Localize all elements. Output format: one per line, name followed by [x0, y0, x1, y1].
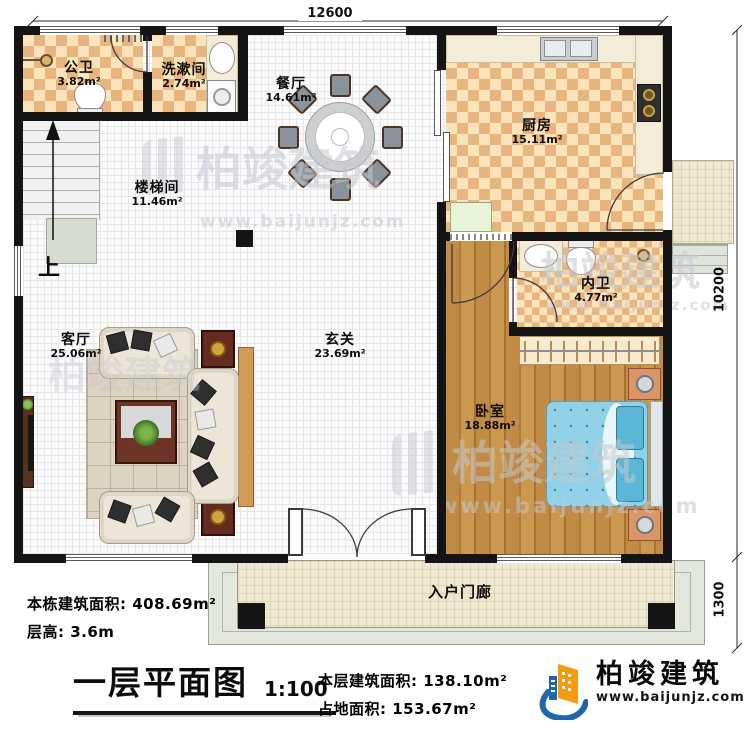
- coffee-table: [115, 400, 177, 464]
- stair-flight: [23, 118, 100, 220]
- bed: [546, 401, 663, 507]
- room-area: 14.61m²: [252, 92, 330, 105]
- room-area: 4.77m²: [558, 292, 634, 305]
- wall-segment: [437, 26, 446, 70]
- room-name: 玄关: [302, 332, 378, 348]
- side-table: [201, 330, 235, 368]
- window: [66, 554, 192, 563]
- room-label-washroom: 洗漱间 2.74m²: [147, 62, 221, 91]
- room-name: 厨房: [500, 118, 574, 134]
- kitchen-sink-basin: [570, 40, 592, 57]
- room-area: 2.74m²: [147, 78, 221, 91]
- dimension-porch-height: 1300: [713, 573, 728, 627]
- dining-chair: [330, 74, 351, 97]
- bed-pillow: [616, 458, 644, 502]
- wardrobe-rod: [520, 350, 661, 352]
- room-name: 内卫: [558, 276, 634, 292]
- room-name: 餐厅: [252, 76, 330, 92]
- side-terrace: [672, 160, 734, 244]
- room-name: 洗漱间: [147, 62, 221, 78]
- room-label-dining: 餐厅 14.61m²: [252, 76, 330, 105]
- console-table: [238, 347, 254, 507]
- stove-burner: [643, 105, 655, 117]
- kitchen-sink-basin: [544, 40, 566, 57]
- brand-logo-icon: [536, 660, 588, 720]
- plant-icon: [22, 399, 33, 410]
- nightstand: [628, 368, 661, 400]
- window: [497, 26, 619, 35]
- floor-plan-canvas: 入户门廊: [0, 0, 750, 730]
- plant-icon: [133, 420, 159, 446]
- dimension-tick: [658, 16, 668, 26]
- room-area: 18.88m²: [452, 420, 528, 433]
- wall-segment: [517, 327, 663, 336]
- sofa-pillow: [194, 408, 216, 430]
- nightstand: [628, 509, 661, 541]
- brand-text-block: 柏竣建筑 www.baijunjz.com: [596, 660, 745, 705]
- lamp-icon: [210, 509, 226, 525]
- footprint-area-text: 占地面积: 153.67m²: [318, 698, 476, 719]
- room-label-public-bath: 公卫 3.82m²: [44, 60, 114, 89]
- room-name: 客厅: [38, 332, 114, 348]
- wall-segment: [143, 35, 152, 41]
- stairs-up-label: 上: [38, 250, 60, 282]
- brand-name: 柏竣建筑: [596, 660, 745, 690]
- bed-pillow: [616, 406, 644, 450]
- fridge: [450, 202, 492, 232]
- window: [166, 26, 218, 35]
- window: [284, 26, 406, 35]
- floor-area-text: 本层建筑面积: 138.10m²: [318, 670, 507, 691]
- brand-logo-block: 柏竣建筑 www.baijunjz.com: [536, 660, 745, 720]
- dimension-tick: [28, 16, 38, 26]
- lamp-icon: [210, 341, 226, 357]
- dining-chair: [330, 178, 351, 201]
- porch-column: [648, 603, 675, 629]
- sofa-pillow: [130, 329, 152, 351]
- room-label-entry-porch: 入户门廊: [413, 584, 507, 601]
- dimension-tick: [732, 552, 742, 562]
- wall-segment: [14, 112, 238, 121]
- room-label-foyer: 玄关 23.69m²: [302, 332, 378, 361]
- room-name: 公卫: [44, 60, 114, 76]
- entry-door-panel: [288, 508, 303, 556]
- sliding-door-panel: [443, 132, 450, 202]
- table-lamp-icon: [636, 516, 654, 534]
- brand-tower: [549, 676, 557, 700]
- dining-chair: [278, 126, 299, 149]
- building-total-area-text: 本栋建筑面积: 408.69m²: [27, 593, 216, 614]
- shower-head-icon: [637, 249, 650, 262]
- dimension-tick: [732, 643, 742, 653]
- wall-segment: [663, 26, 672, 172]
- plan-title: 一层平面图: [73, 656, 248, 704]
- room-label-bedroom: 卧室 18.88m²: [452, 404, 528, 433]
- wall-segment: [509, 240, 517, 278]
- wall-segment: [663, 230, 672, 563]
- dimension-top-width: 12600: [298, 6, 362, 21]
- porch-column: [238, 603, 265, 629]
- window: [40, 26, 140, 35]
- window: [497, 554, 621, 563]
- room-area: 11.46m²: [118, 196, 196, 209]
- tv-icon: [28, 415, 33, 471]
- bedroom-corridor-floor: [446, 240, 509, 336]
- room-label-living: 客厅 25.06m²: [38, 332, 114, 361]
- room-area: 25.06m²: [38, 348, 114, 361]
- wall-segment: [238, 26, 248, 121]
- room-area: 3.82m²: [44, 76, 114, 89]
- dining-table-center: [331, 128, 349, 146]
- bed-headboard: [650, 401, 663, 507]
- door-threshold: [450, 234, 512, 240]
- room-area: 23.69m²: [302, 348, 378, 361]
- floor-height-text: 层高: 3.6m: [27, 621, 114, 642]
- stove-burner: [643, 89, 655, 101]
- room-label-stairwell: 楼梯间 11.46m²: [118, 180, 196, 209]
- room-name-entry-porch: 入户门廊: [413, 584, 507, 601]
- inner-bath-sink: [524, 244, 558, 268]
- table-lamp-icon: [636, 375, 654, 393]
- brand-url: www.baijunjz.com: [596, 690, 745, 705]
- wardrobe: [519, 336, 660, 365]
- dining-chair: [382, 126, 403, 149]
- window: [14, 246, 23, 296]
- wall-segment: [437, 202, 446, 240]
- room-label-kitchen: 厨房 15.11m²: [500, 118, 574, 147]
- wall-segment: [509, 322, 517, 336]
- room-name: 卧室: [452, 404, 528, 420]
- dimension-tick: [732, 25, 742, 35]
- room-label-inner-bath: 内卫 4.77m²: [558, 276, 634, 305]
- wall-segment: [437, 240, 446, 554]
- plan-title-block: 一层平面图 1:100: [73, 656, 336, 715]
- structural-column: [236, 230, 253, 247]
- room-area: 15.11m²: [500, 134, 574, 147]
- sliding-door-panel: [434, 70, 441, 136]
- room-name: 楼梯间: [118, 180, 196, 196]
- dimension-right-height: 10200: [713, 260, 728, 320]
- entry-door-panel: [411, 508, 426, 556]
